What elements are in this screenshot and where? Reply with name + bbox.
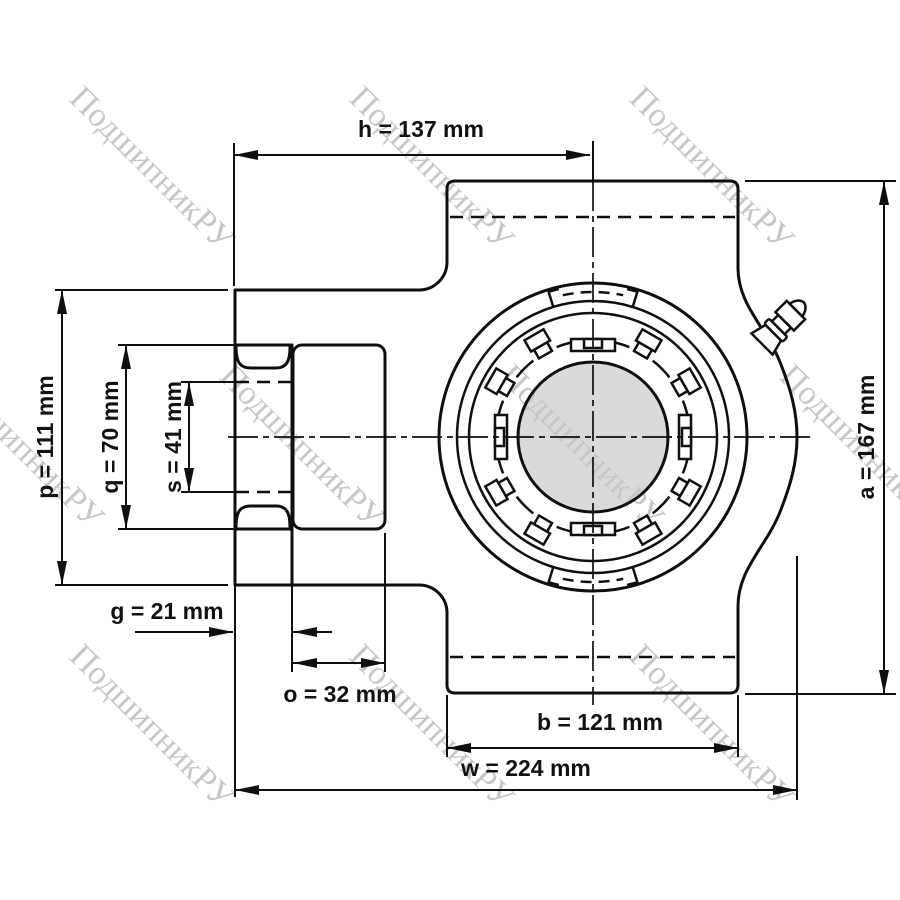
- arm-slot-bottom-lip: [236, 506, 290, 528]
- dimension-s-label: s = 41 mm: [160, 381, 186, 493]
- watermark-text: ПодшипникРУ: [62, 637, 241, 816]
- watermark-text: ПодшипникРУ: [772, 357, 900, 536]
- dimension-p: p = 111 mm: [32, 290, 228, 585]
- dimension-s: s = 41 mm: [160, 381, 235, 493]
- dimension-g-label: g = 21 mm: [110, 598, 223, 624]
- dimension-h-label: h = 137 mm: [358, 116, 484, 142]
- dimension-g: g = 21 mm: [110, 598, 332, 637]
- dimension-o-label: o = 32 mm: [283, 681, 396, 707]
- dimension-w-label: w = 224 mm: [460, 755, 591, 781]
- technical-drawing-page: ПодшипникРУ ПодшипникРУ ПодшипникРУ Подш…: [0, 0, 900, 900]
- dimension-h: h = 137 mm: [234, 116, 590, 286]
- dimension-w: w = 224 mm: [235, 556, 797, 800]
- dimension-a-label: a = 167 mm: [853, 375, 879, 500]
- watermark-text: ПодшипникРУ: [62, 79, 241, 258]
- watermark-text: ПодшипникРУ: [342, 79, 521, 258]
- dimension-b-label: b = 121 mm: [537, 709, 663, 735]
- dimension-a: a = 167 mm: [745, 181, 896, 694]
- bearing-drawing-canvas: ПодшипникРУ ПодшипникРУ ПодшипникРУ Подш…: [0, 0, 900, 900]
- watermark-layer: ПодшипникРУ ПодшипникРУ ПодшипникРУ Подш…: [0, 79, 900, 816]
- dimension-o: o = 32 mm: [283, 533, 396, 707]
- grease-fitting-icon: [751, 292, 814, 355]
- dimension-q-label: q = 70 mm: [97, 380, 123, 493]
- watermark-text: ПодшипникРУ: [622, 79, 801, 258]
- dimension-p-label: p = 111 mm: [32, 375, 58, 498]
